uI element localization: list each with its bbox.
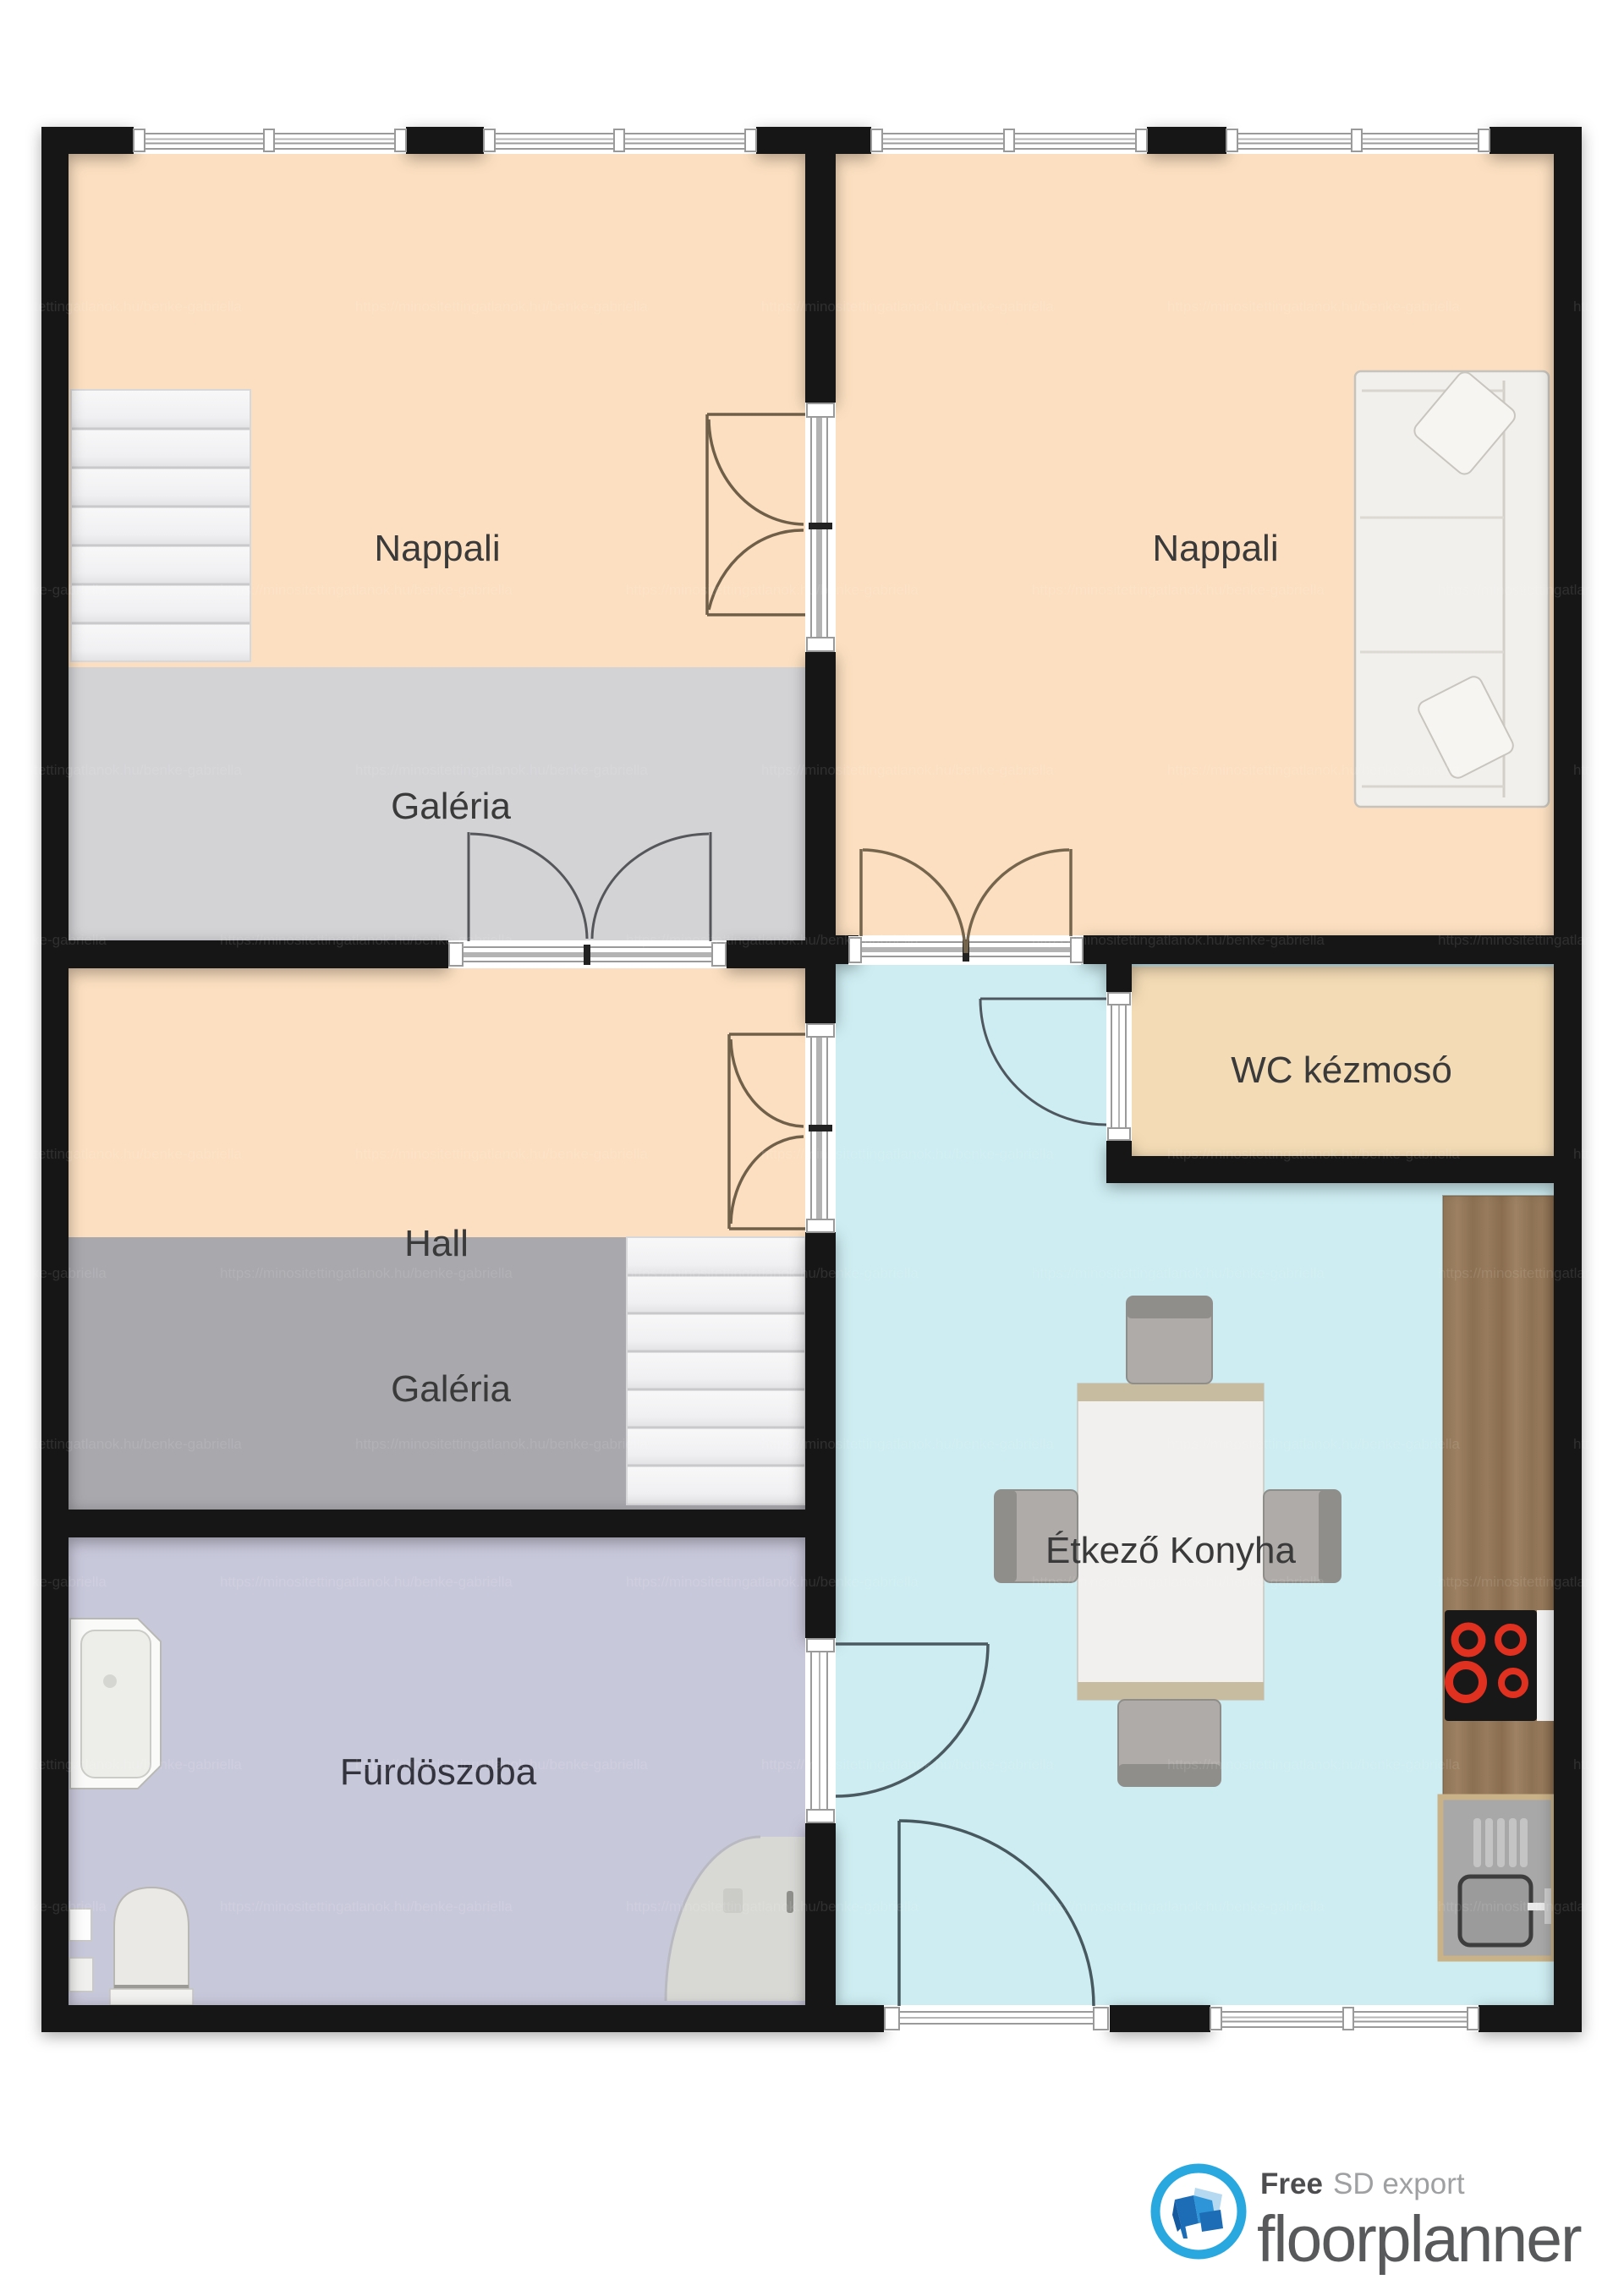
- svg-text:https://minositettingatlanok.h: https://minositettingatlanok.hu/benke-ga…: [0, 1265, 107, 1281]
- svg-text:https://minositettingatlanok.h: https://minositettingatlanok.hu/benke-ga…: [1438, 1574, 1624, 1590]
- svg-text:https://minositettingatlanok.h: https://minositettingatlanok.hu/benke-ga…: [626, 1265, 919, 1281]
- svg-text:https://minositettingatlanok.h: https://minositettingatlanok.hu/benke-ga…: [1573, 1436, 1624, 1452]
- svg-text:https://minositettingatlanok.h: https://minositettingatlanok.hu/benke-ga…: [626, 582, 919, 598]
- svg-text:https://minositettingatlanok.h: https://minositettingatlanok.hu/benke-ga…: [1438, 582, 1624, 598]
- svg-text:https://minositettingatlanok.h: https://minositettingatlanok.hu/benke-ga…: [1167, 1146, 1460, 1162]
- svg-text:https://minositettingatlanok.h: https://minositettingatlanok.hu/benke-ga…: [1438, 1265, 1624, 1281]
- svg-text:Nappali: Nappali: [374, 528, 500, 569]
- svg-text:https://minositettingatlanok.h: https://minositettingatlanok.hu/benke-ga…: [626, 1574, 919, 1590]
- svg-text:https://minositettingatlanok.h: https://minositettingatlanok.hu/benke-ga…: [355, 1436, 648, 1452]
- svg-text:https://minositettingatlanok.h: https://minositettingatlanok.hu/benke-ga…: [1032, 1574, 1325, 1590]
- svg-text:https://minositettingatlanok.h: https://minositettingatlanok.hu/benke-ga…: [1573, 1756, 1624, 1773]
- svg-text:https://minositettingatlanok.h: https://minositettingatlanok.hu/benke-ga…: [1167, 1756, 1460, 1773]
- svg-text:https://minositettingatlanok.h: https://minositettingatlanok.hu/benke-ga…: [761, 1436, 1054, 1452]
- svg-text:https://minositettingatlanok.h: https://minositettingatlanok.hu/benke-ga…: [1032, 932, 1325, 948]
- svg-text:Galéria: Galéria: [391, 786, 511, 827]
- svg-text:https://minositettingatlanok.h: https://minositettingatlanok.hu/benke-ga…: [220, 932, 513, 948]
- svg-text:https://minositettingatlanok.h: https://minositettingatlanok.hu/benke-ga…: [355, 1146, 648, 1162]
- svg-text:https://minositettingatlanok.h: https://minositettingatlanok.hu/benke-ga…: [761, 1146, 1054, 1162]
- svg-text:Galéria: Galéria: [391, 1368, 511, 1410]
- svg-text:https://minositettingatlanok.h: https://minositettingatlanok.hu/benke-ga…: [1438, 932, 1624, 948]
- svg-text:https://minositettingatlanok.h: https://minositettingatlanok.hu/benke-ga…: [355, 762, 648, 778]
- svg-text:Hall: Hall: [404, 1223, 469, 1264]
- svg-text:https://minositettingatlanok.h: https://minositettingatlanok.hu/benke-ga…: [1032, 1899, 1325, 1915]
- svg-text:https://minositettingatlanok.h: https://minositettingatlanok.hu/benke-ga…: [355, 1756, 648, 1773]
- svg-text:https://minositettingatlanok.h: https://minositettingatlanok.hu/benke-ga…: [220, 582, 513, 598]
- svg-text:https://minositettingatlanok.h: https://minositettingatlanok.hu/benke-ga…: [761, 299, 1054, 315]
- svg-text:https://minositettingatlanok.h: https://minositettingatlanok.hu/benke-ga…: [1438, 1899, 1624, 1915]
- svg-text:floorplanner: floorplanner: [1257, 2203, 1582, 2276]
- svg-text:https://minositettingatlanok.h: https://minositettingatlanok.hu/benke-ga…: [761, 762, 1054, 778]
- svg-text:https://minositettingatlanok.h: https://minositettingatlanok.hu/benke-ga…: [1573, 1146, 1624, 1162]
- svg-text:WC kézmosó: WC kézmosó: [1231, 1049, 1452, 1091]
- svg-text:Nappali: Nappali: [1152, 528, 1278, 569]
- svg-text:https://minositettingatlanok.h: https://minositettingatlanok.hu/benke-ga…: [0, 932, 107, 948]
- svg-text:Free: Free: [1260, 2167, 1323, 2200]
- svg-text:https://minositettingatlanok.h: https://minositettingatlanok.hu/benke-ga…: [0, 762, 242, 778]
- svg-text:https://minositettingatlanok.h: https://minositettingatlanok.hu/benke-ga…: [0, 299, 242, 315]
- svg-text:Étkező Konyha: Étkező Konyha: [1045, 1530, 1296, 1571]
- svg-text:https://minositettingatlanok.h: https://minositettingatlanok.hu/benke-ga…: [220, 1265, 513, 1281]
- svg-text:https://minositettingatlanok.h: https://minositettingatlanok.hu/benke-ga…: [761, 1756, 1054, 1773]
- svg-text:https://minositettingatlanok.h: https://minositettingatlanok.hu/benke-ga…: [355, 299, 648, 315]
- svg-text:https://minositettingatlanok.h: https://minositettingatlanok.hu/benke-ga…: [1032, 1265, 1325, 1281]
- svg-text:https://minositettingatlanok.h: https://minositettingatlanok.hu/benke-ga…: [0, 1436, 242, 1452]
- svg-text:https://minositettingatlanok.h: https://minositettingatlanok.hu/benke-ga…: [1032, 582, 1325, 598]
- svg-text:https://minositettingatlanok.h: https://minositettingatlanok.hu/benke-ga…: [1167, 762, 1460, 778]
- svg-text:https://minositettingatlanok.h: https://minositettingatlanok.hu/benke-ga…: [0, 1899, 107, 1915]
- svg-text:https://minositettingatlanok.h: https://minositettingatlanok.hu/benke-ga…: [0, 1574, 107, 1590]
- svg-text:https://minositettingatlanok.h: https://minositettingatlanok.hu/benke-ga…: [626, 1899, 919, 1915]
- svg-text:SD export: SD export: [1333, 2167, 1465, 2200]
- svg-text:https://minositettingatlanok.h: https://minositettingatlanok.hu/benke-ga…: [0, 582, 107, 598]
- svg-text:https://minositettingatlanok.h: https://minositettingatlanok.hu/benke-ga…: [1573, 299, 1624, 315]
- svg-text:https://minositettingatlanok.h: https://minositettingatlanok.hu/benke-ga…: [220, 1574, 513, 1590]
- svg-text:https://minositettingatlanok.h: https://minositettingatlanok.hu/benke-ga…: [0, 1146, 242, 1162]
- svg-text:https://minositettingatlanok.h: https://minositettingatlanok.hu/benke-ga…: [626, 932, 919, 948]
- svg-text:https://minositettingatlanok.h: https://minositettingatlanok.hu/benke-ga…: [1573, 762, 1624, 778]
- svg-text:https://minositettingatlanok.h: https://minositettingatlanok.hu/benke-ga…: [0, 1756, 242, 1773]
- svg-text:https://minositettingatlanok.h: https://minositettingatlanok.hu/benke-ga…: [220, 1899, 513, 1915]
- svg-text:https://minositettingatlanok.h: https://minositettingatlanok.hu/benke-ga…: [1167, 1436, 1460, 1452]
- svg-text:https://minositettingatlanok.h: https://minositettingatlanok.hu/benke-ga…: [1167, 299, 1460, 315]
